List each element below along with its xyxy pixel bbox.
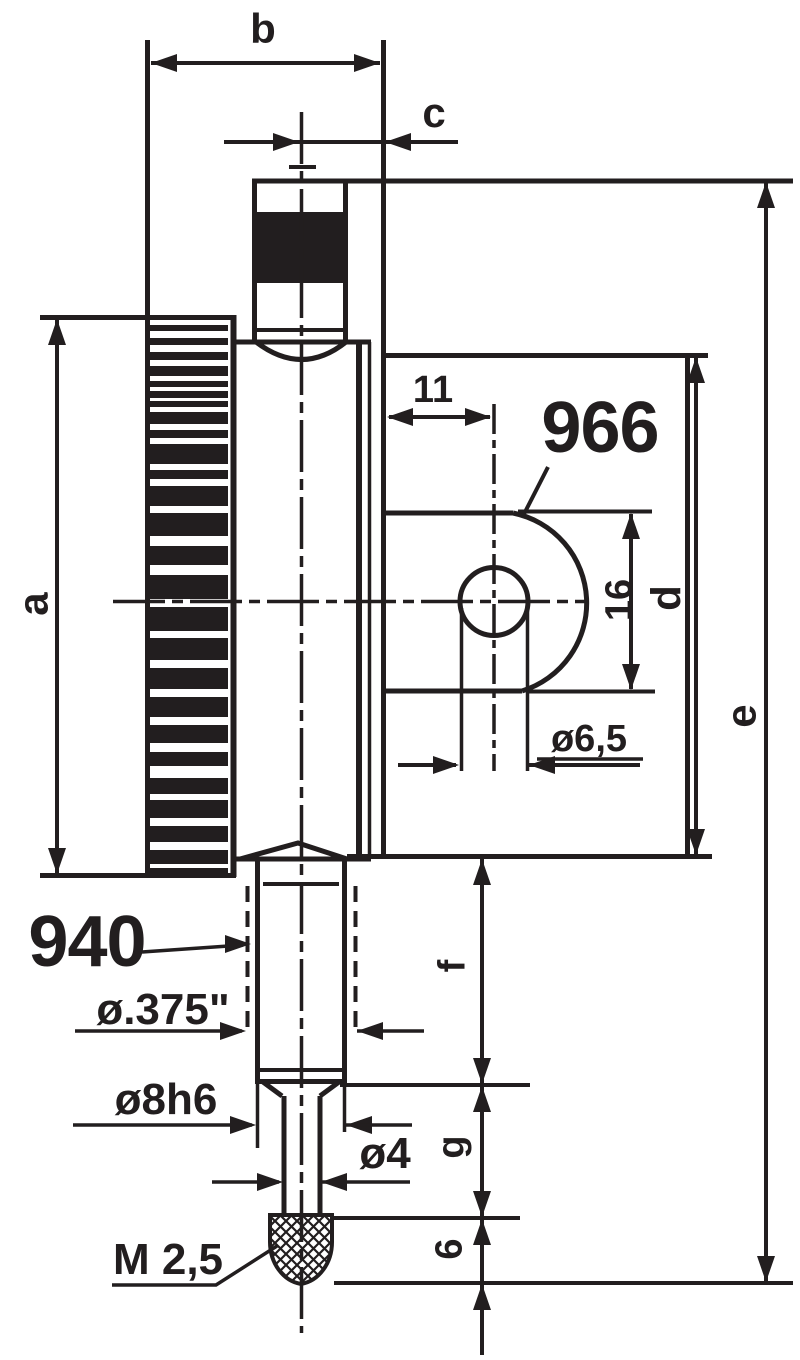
centerlines (113, 112, 586, 1333)
dim-e-arrow-bottom (757, 1256, 775, 1282)
dim-6-arrow-bottom (473, 1284, 491, 1310)
drawing-page: b c a d e 16 11 (0, 0, 800, 1360)
dim-stem-metric-arrow-left (230, 1116, 256, 1134)
dimensions: b c a d e 16 11 (10, 5, 793, 1355)
dim-c-arrow-right (385, 133, 411, 151)
dim-a-arrow-bottom (48, 848, 66, 874)
dim-spindle-arrow-left (257, 1173, 283, 1191)
dim-a-label: a (10, 592, 57, 616)
dim-stem-inch-arrow-left (220, 1022, 246, 1040)
dim-f-label: f (431, 959, 473, 972)
dim-e-arrow-top (757, 182, 775, 208)
dim-f-arrow-bottom (473, 1058, 491, 1084)
dim-g-arrow-top (473, 1086, 491, 1112)
dim-11-arrow-right (465, 408, 491, 426)
dial-indicator-dimension-drawing: b c a d e 16 11 (0, 0, 800, 1360)
dim-stem-metric-label: ø8h6 (115, 1075, 218, 1124)
dim-spindle-label: ø4 (359, 1129, 411, 1178)
dim-b-arrow-right (354, 54, 380, 72)
dim-f-arrow-top (473, 859, 491, 885)
dim-hole-arrow-left (433, 756, 459, 774)
part-966-leader (523, 467, 548, 516)
part-940-label: 940 (28, 902, 145, 982)
dim-e-label: e (718, 704, 765, 727)
dim-b-arrow-left (151, 54, 177, 72)
dim-6-label: 6 (428, 1238, 470, 1259)
dim-16-arrow-bottom (622, 664, 640, 690)
dim-stem-inch-label: ø.375" (96, 985, 229, 1034)
dim-16-label: 16 (598, 579, 640, 621)
dim-11-arrow-left (387, 408, 413, 426)
dim-g-label: g (430, 1135, 472, 1158)
dim-hole-label: ø6,5 (551, 718, 627, 760)
bezel-knurl (150, 325, 228, 874)
stem-chamfer-left (263, 1082, 282, 1096)
stem-chamfer-right (320, 1082, 339, 1096)
dim-16-arrow-top (622, 513, 640, 539)
dim-11-label: 11 (413, 369, 453, 411)
dim-thread-label: M 2,5 (113, 1235, 223, 1284)
dim-c-arrow-left (273, 133, 299, 151)
dim-c-label: c (422, 89, 445, 136)
dim-a-arrow-top (48, 319, 66, 345)
dim-d-label: d (643, 585, 690, 611)
dim-6-arrow-top (473, 1219, 491, 1245)
dim-b-label: b (250, 5, 276, 52)
dim-g-arrow-bottom (473, 1191, 491, 1217)
part-966-label: 966 (541, 388, 658, 468)
